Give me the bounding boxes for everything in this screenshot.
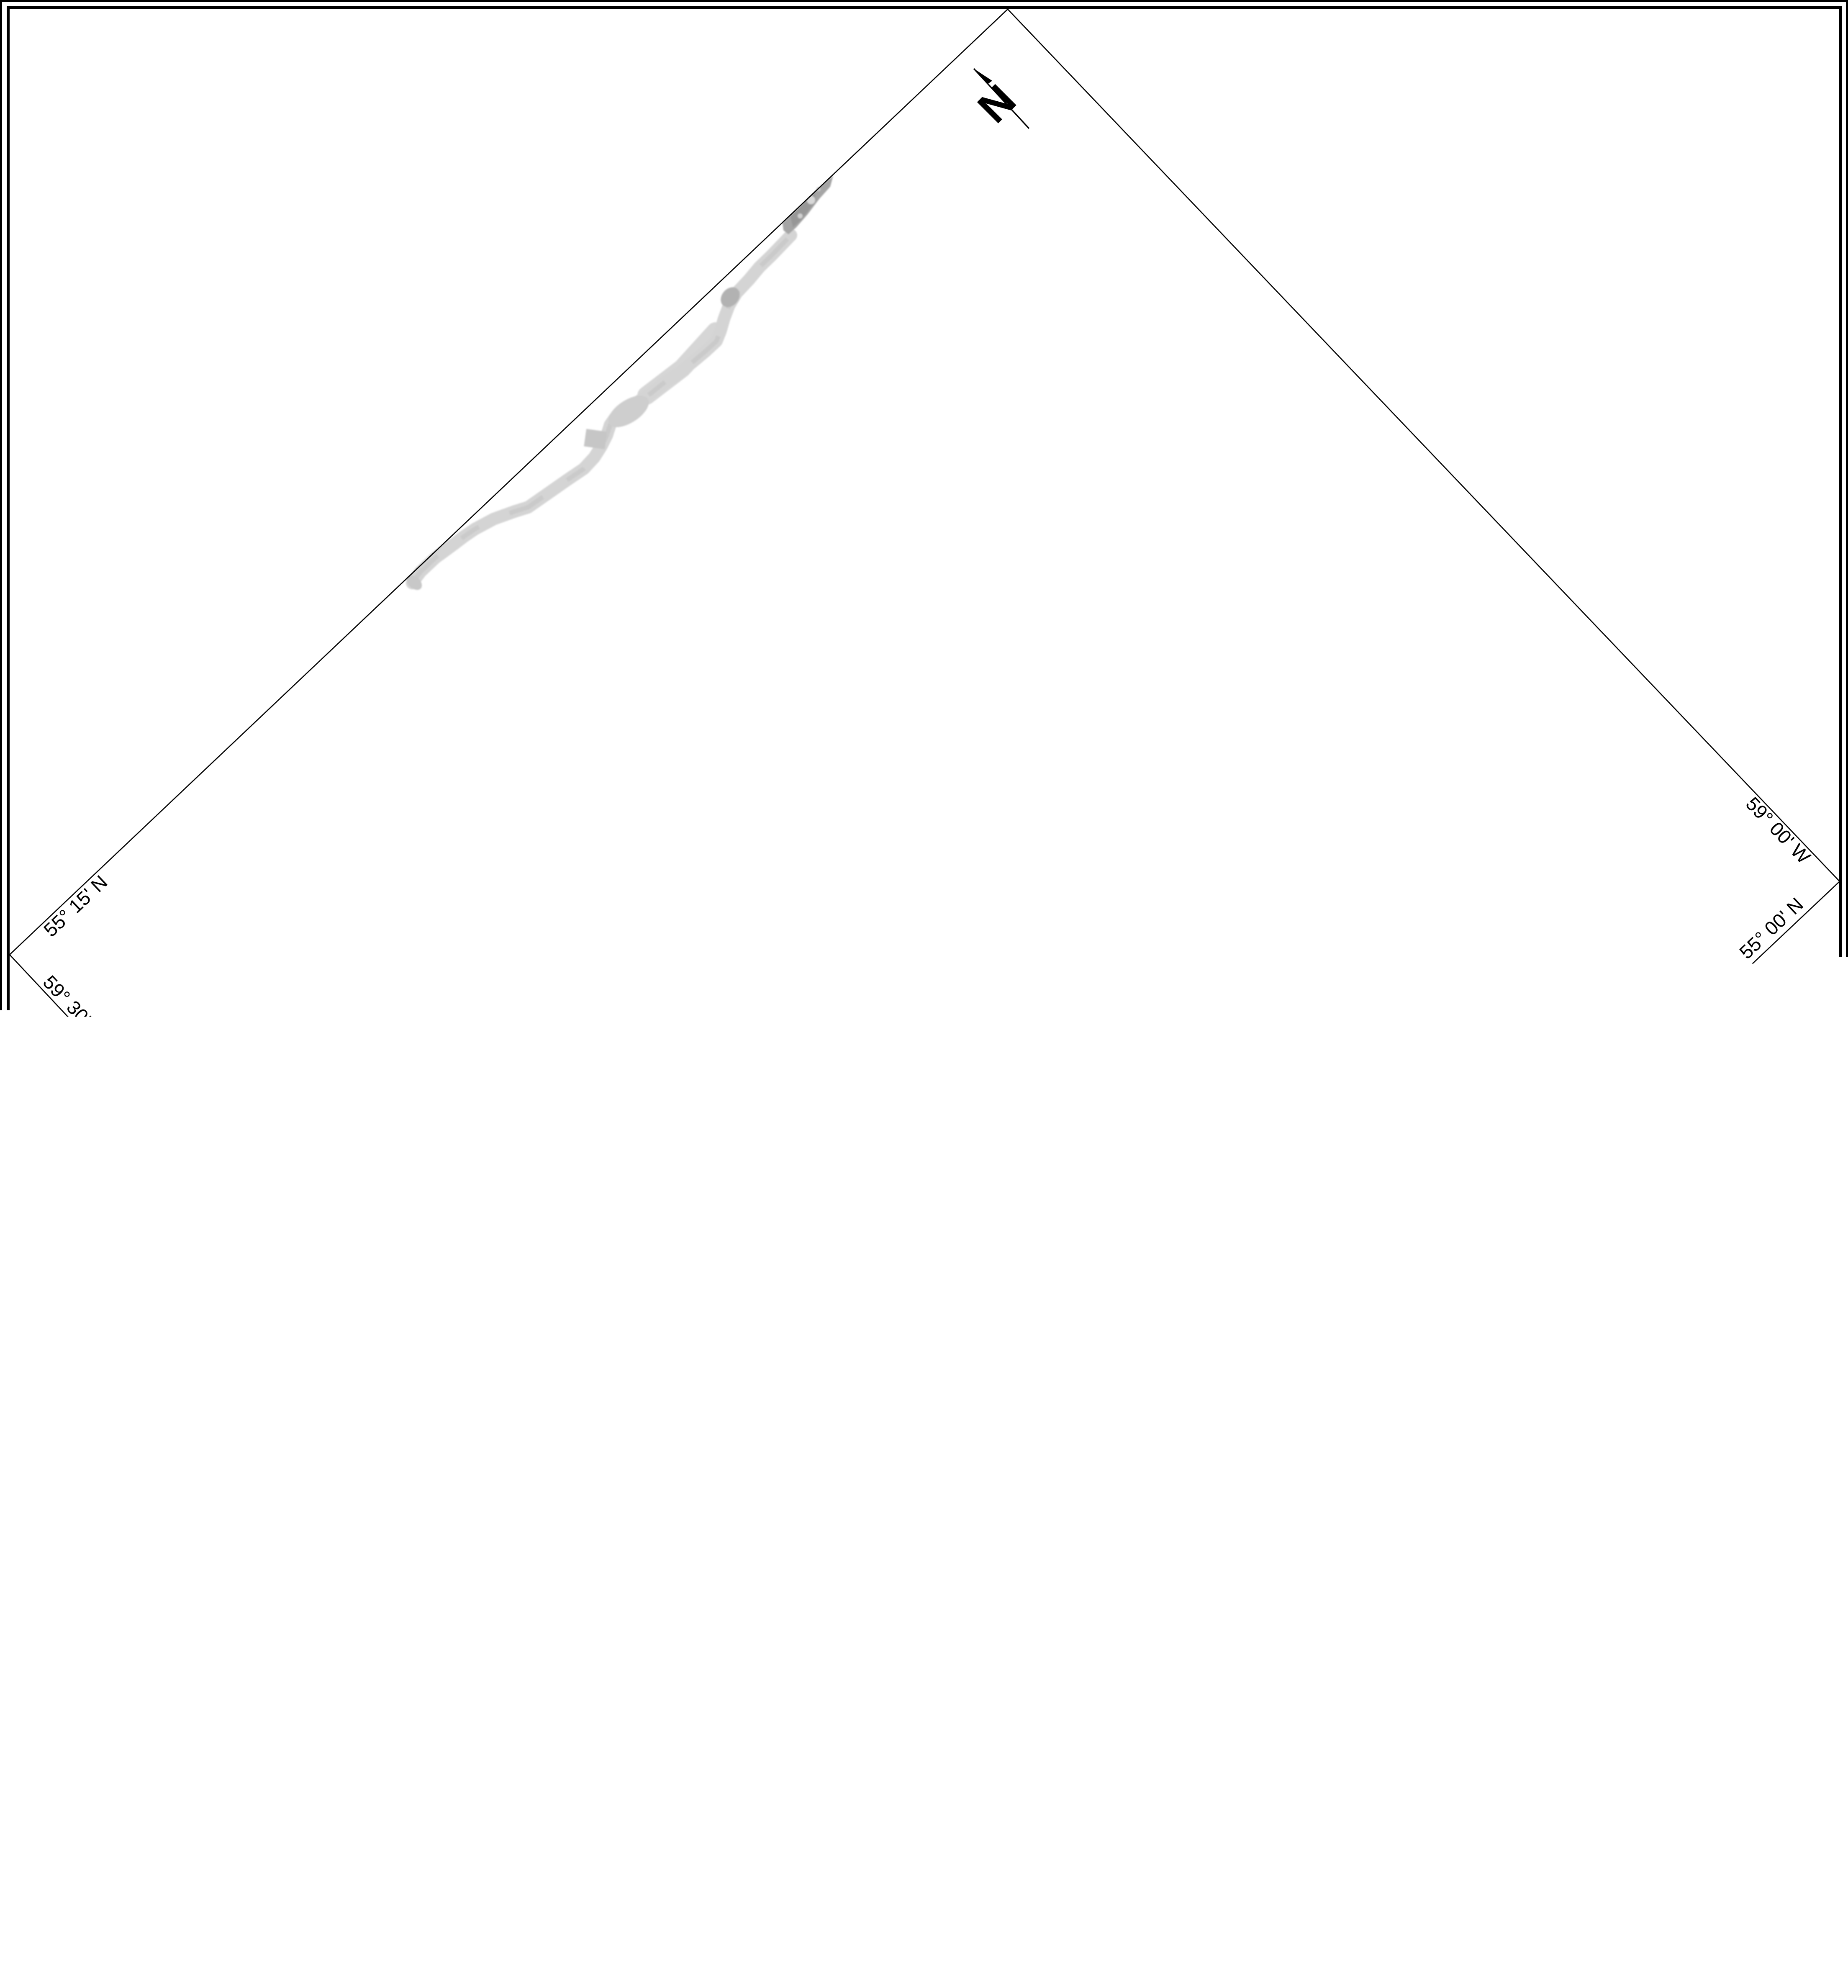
svg-text:55° 00' N: 55° 00' N [1735,893,1807,963]
svg-text:59° 30' W: 59° 30' W [39,971,112,1047]
svg-text:N: N [969,76,1025,132]
svg-text:59° 00' W: 59° 00' W [1742,793,1815,868]
svg-text:55° 15' N: 55° 15' N [39,871,111,941]
